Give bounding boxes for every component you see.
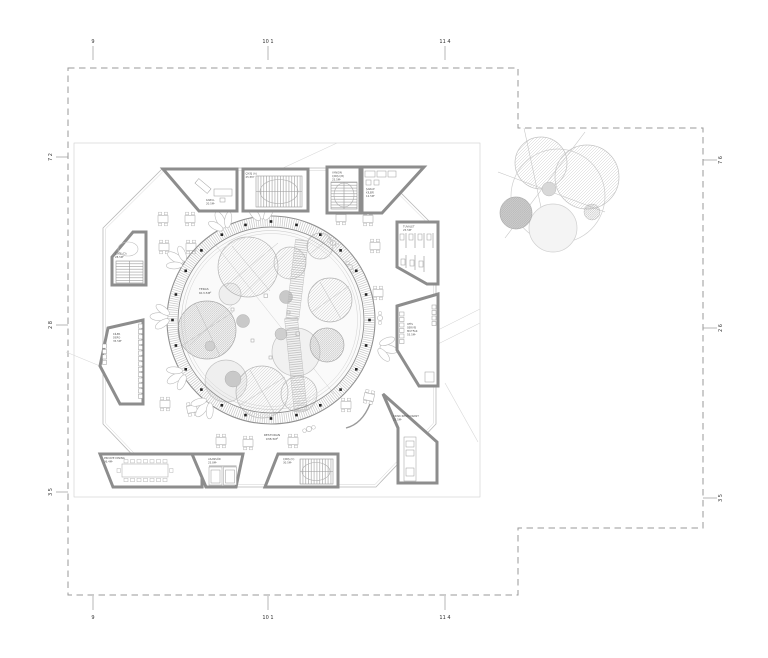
site-boundary (68, 68, 703, 595)
label-dining-line2: 36.4M² (104, 460, 113, 464)
room-sarap: ŞARAP KİLERİ 12.5M² (362, 167, 424, 213)
label-depo-line3: 35.5M² (113, 339, 122, 343)
grid-label-left-2: 2 8 (48, 321, 54, 329)
label-kiosk-line1: KIOSK RESTAURANT (393, 414, 419, 418)
grid-label-bottom-1: 9 (91, 615, 94, 621)
label-cikis-d-line1: ÇIKIŞ (D) (115, 252, 127, 256)
room-stair-c: ÇIKIŞ (C) 30.5M² (265, 454, 338, 487)
label-teras-line2: 613.5M² (199, 291, 212, 295)
label-dining-line1: PRIVATE DINING (104, 456, 125, 460)
label-sarap-line3: 12.5M² (366, 194, 375, 198)
label-sarap-line1: ŞARAP (366, 187, 375, 191)
grid-label-bottom-3: 11 4 (439, 615, 450, 621)
site-tree-cluster (498, 128, 619, 252)
grid-label-top-3: 11 4 (439, 39, 450, 45)
room-depo: KİLER DEPO 35.5M² (100, 320, 143, 404)
label-tuvalet-line2: 25.5M² (403, 228, 412, 232)
label-yangin-line1: YANGIN (332, 171, 342, 175)
grid-label-bottom-2: 10 1 (262, 615, 273, 621)
room-stair-a: ÇIKIŞ (A) 25.5M² (243, 169, 308, 211)
label-cikis-a-line1: ÇIKIŞ (A) (246, 172, 257, 176)
room-kiosk: KIOSK RESTAURANT 25.5M² (383, 394, 437, 483)
floor-plan-drawing: 9 10 1 11 4 9 10 1 11 4 7 2 2 8 3 5 7 6 … (0, 0, 768, 658)
grid-label-right-2: 2 6 (718, 324, 724, 332)
label-kiosk-line2: 25.5M² (393, 418, 402, 422)
label-yangin-line2: ÇIKIŞI (B) (332, 174, 344, 178)
grid-label-left-3: 3 5 (48, 488, 54, 496)
room-stair-d: ÇIKIŞ (D) 28.5M² (112, 232, 146, 285)
label-cikis-a-line2: 25.5M² (246, 175, 255, 179)
courtyard: TERAS 613.5M² (150, 200, 401, 428)
label-asansor-line2: 25.8M² (208, 461, 217, 465)
label-mutfak-line4: 55.5M² (407, 333, 416, 337)
room-tuvalet: TUVALET 25.5M² (397, 222, 438, 284)
room-kabul: KABUL 20.5M² (163, 169, 237, 211)
grid-label-top-2: 10 1 (262, 39, 273, 45)
label-tuvalet-line1: TUVALET (403, 225, 415, 229)
grid-label-top-1: 9 (91, 39, 94, 45)
label-cikis-d-line2: 28.5M² (115, 255, 124, 259)
grid-labels: 9 10 1 11 4 9 10 1 11 4 7 2 2 8 3 5 7 6 … (48, 39, 724, 621)
room-mutfak: OFİS SERVİS MUTFAK 55.5M² (397, 294, 438, 386)
room-stair-b: YANGIN ÇIKIŞI (B) 25.5M² (327, 167, 360, 213)
label-depo-line2: DEPO (113, 336, 120, 340)
room-dining: PRIVATE DINING 36.4M² (100, 454, 202, 487)
label-cikis-c-line1: ÇIKIŞ (C) (283, 457, 294, 461)
label-mutfak-line3: MUTFAK (407, 329, 418, 333)
grid-label-right-3: 3 5 (718, 494, 724, 502)
label-kabul-line1: KABUL (206, 198, 215, 202)
label-yangin-line3: 25.5M² (332, 178, 341, 182)
floor-plan-canvas: 9 10 1 11 4 9 10 1 11 4 7 2 2 8 3 5 7 6 … (0, 0, 768, 658)
label-cikis-c-line2: 30.5M² (283, 461, 292, 465)
label-kabul-line2: 20.5M² (206, 202, 215, 206)
grid-label-right-1: 7 6 (718, 156, 724, 164)
label-restoran-line2: 938.5M² (266, 437, 279, 441)
grid-label-left-1: 7 2 (48, 153, 54, 161)
